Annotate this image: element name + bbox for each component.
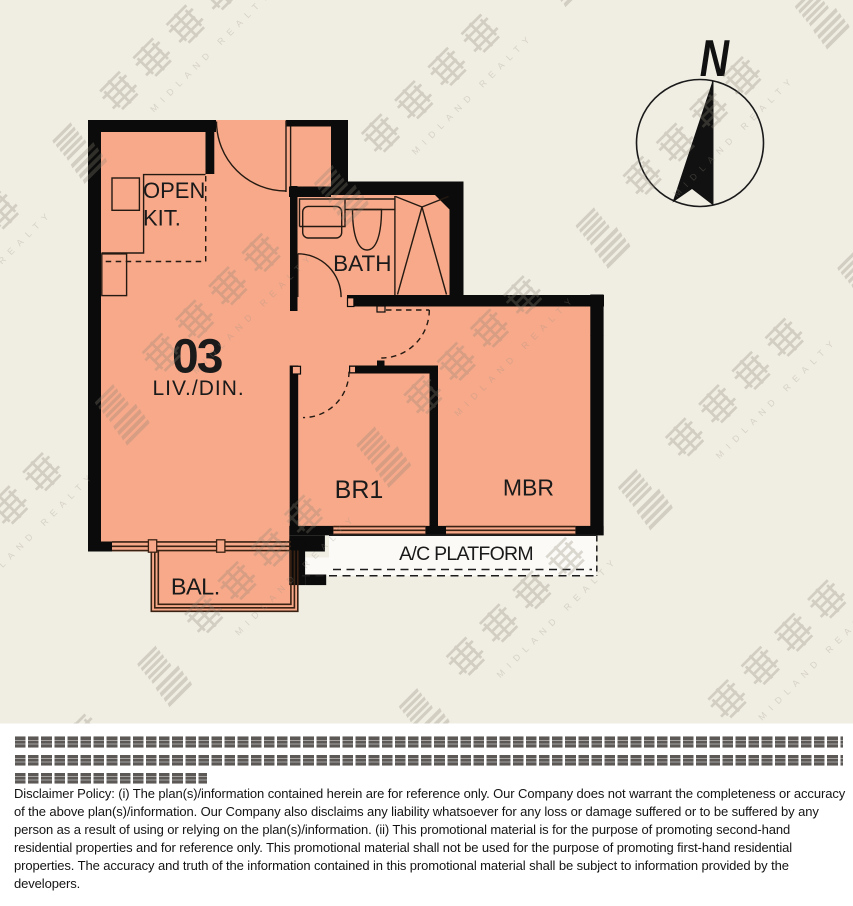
- svg-text:A/C PLATFORM: A/C PLATFORM: [399, 543, 533, 565]
- svg-text:OPEN: OPEN: [143, 178, 205, 203]
- svg-text:LIV./DIN.: LIV./DIN.: [152, 377, 244, 400]
- svg-text:MBR: MBR: [503, 475, 554, 501]
- svg-text:BR1: BR1: [335, 476, 384, 504]
- svg-text:N: N: [700, 29, 730, 87]
- svg-text:BAL.: BAL.: [171, 574, 220, 600]
- svg-text:BATH: BATH: [333, 251, 391, 276]
- svg-text:KIT.: KIT.: [143, 205, 181, 230]
